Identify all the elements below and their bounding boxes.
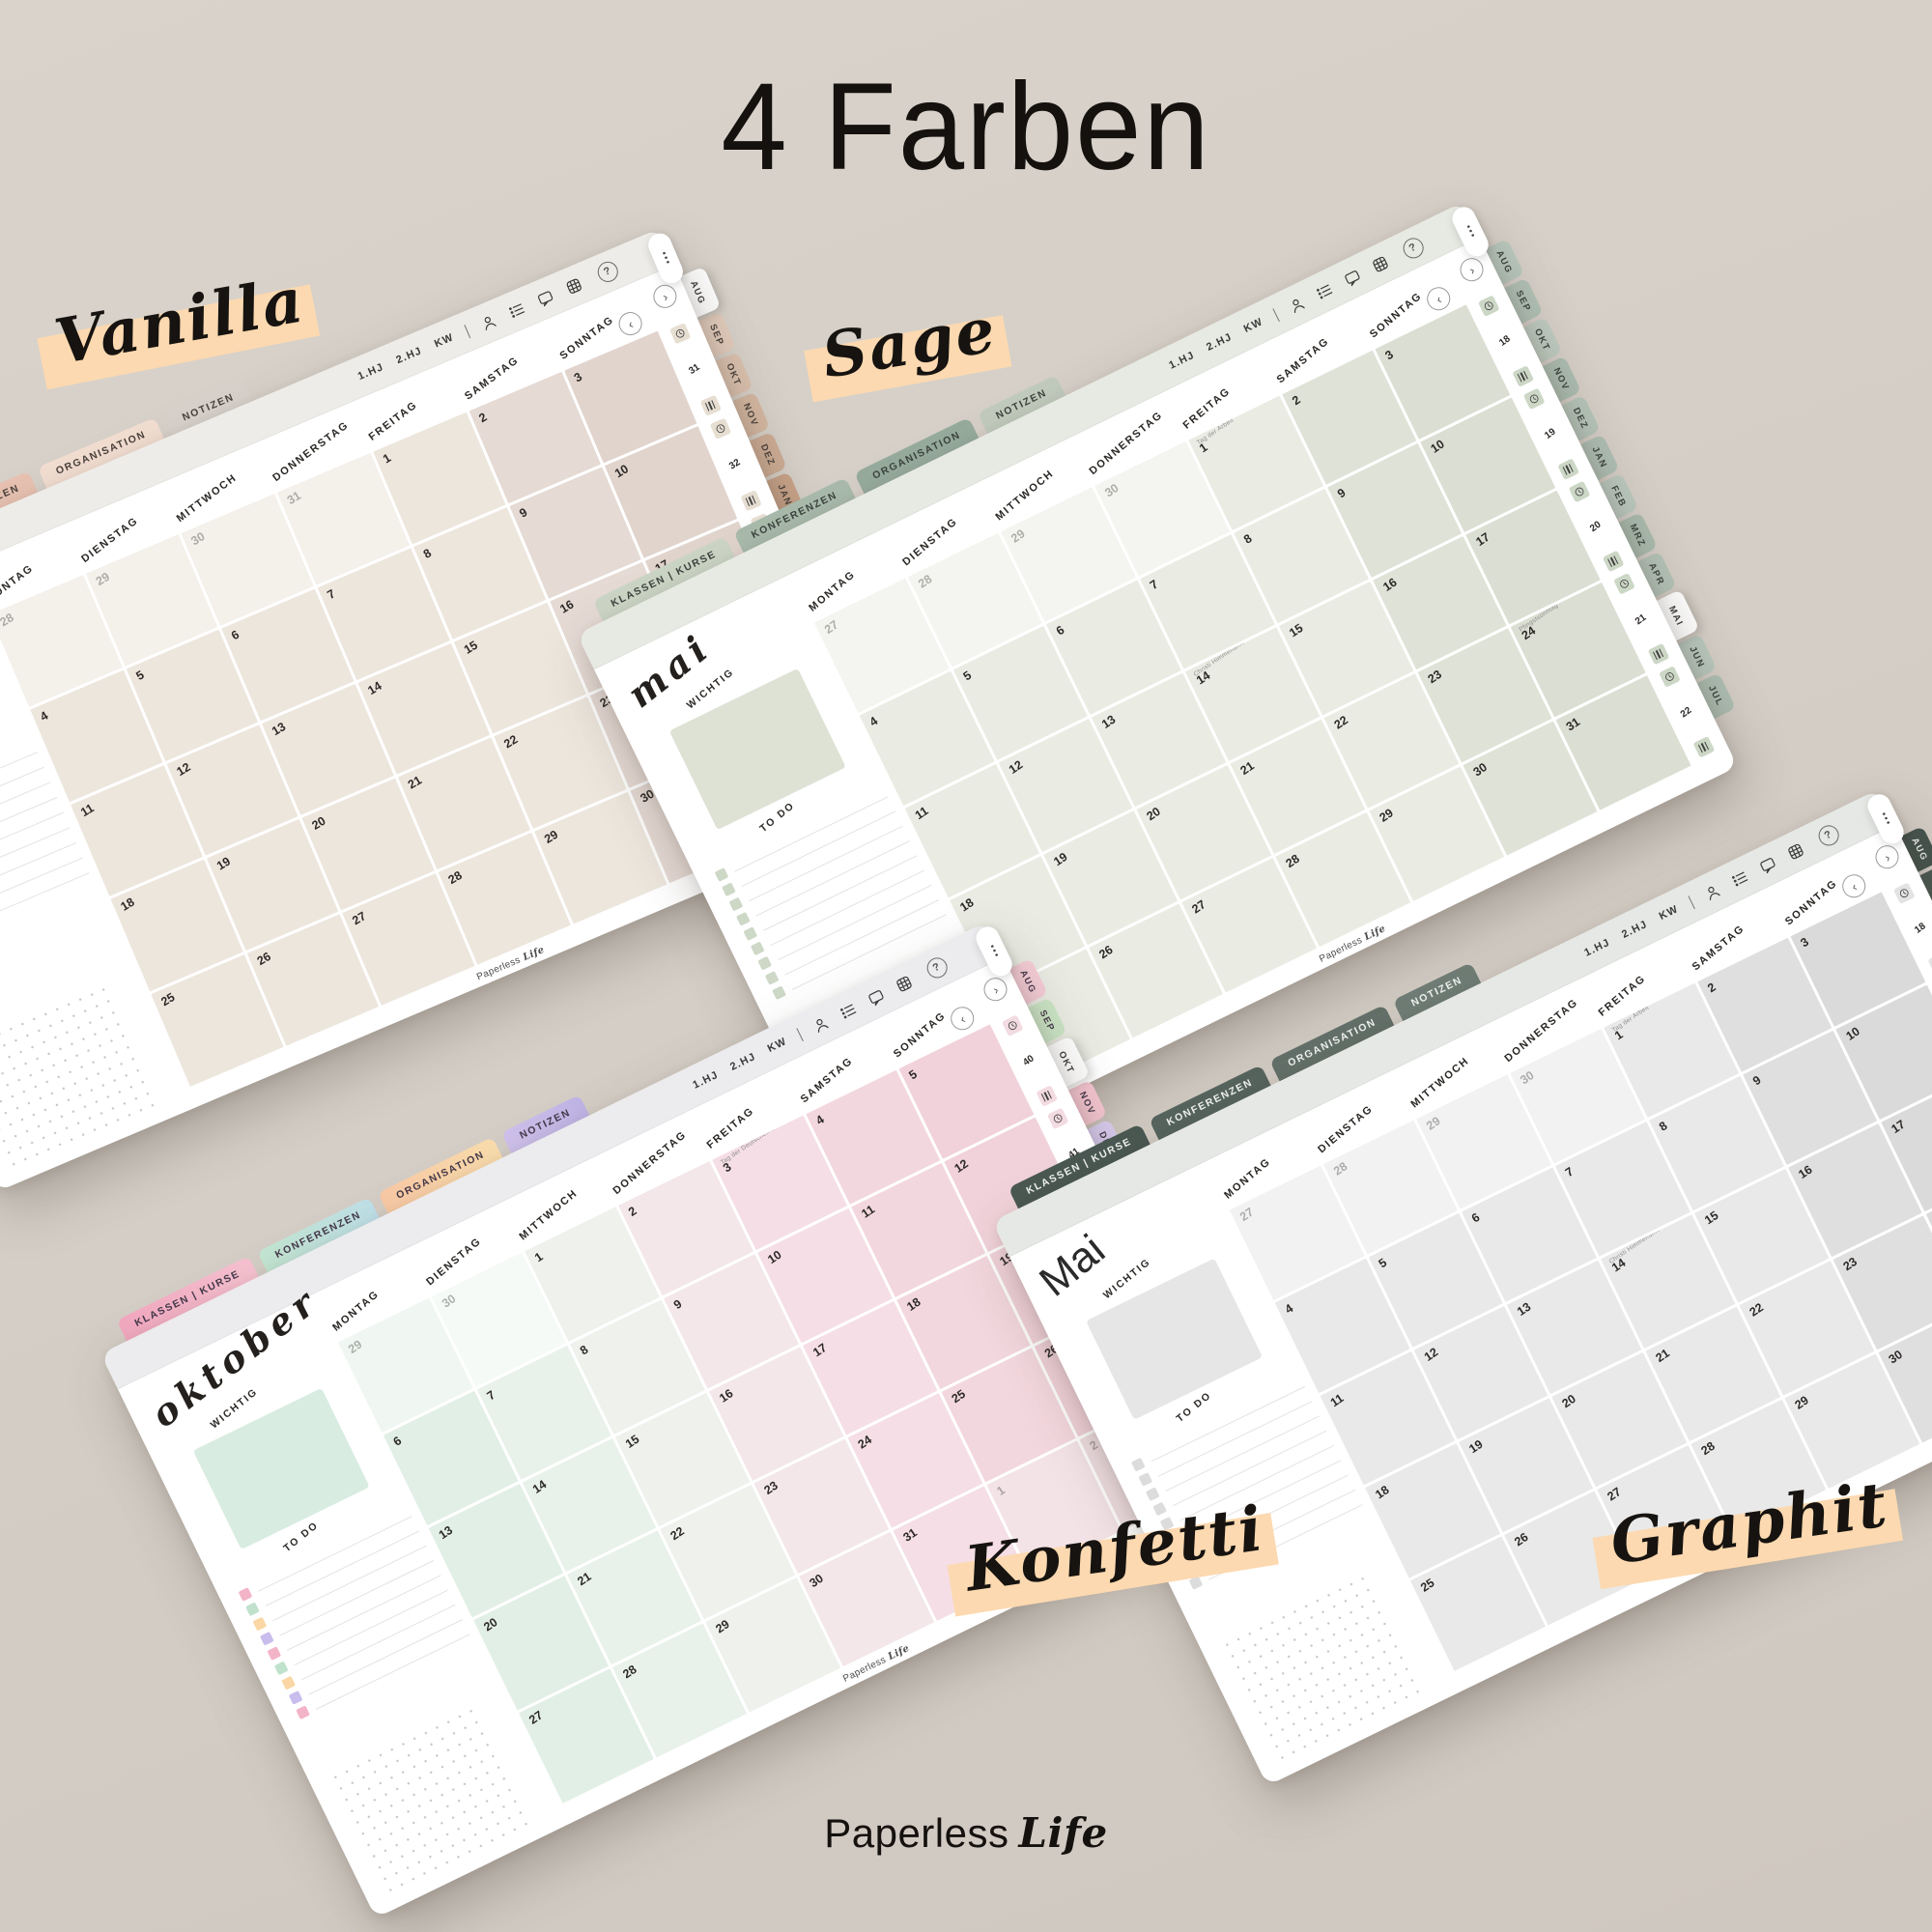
week-number: 18 — [1914, 922, 1928, 936]
day-number: 20 — [1560, 1392, 1578, 1410]
day-number: 1 — [1197, 440, 1210, 455]
day-number: 25 — [1418, 1577, 1436, 1595]
clock-chip[interactable] — [1568, 481, 1590, 503]
day-number: 10 — [1844, 1024, 1862, 1042]
day-number: 12 — [952, 1156, 971, 1175]
day-number: 11 — [1328, 1391, 1347, 1409]
profile-icon[interactable] — [478, 311, 499, 332]
week-number: 22 — [1679, 704, 1693, 719]
day-number: 22 — [1747, 1301, 1766, 1320]
day-number: 21 — [1654, 1347, 1672, 1365]
chat-icon[interactable] — [534, 287, 555, 308]
lines-chip[interactable] — [1036, 1085, 1058, 1107]
toolbar-tab-kw[interactable]: KW — [766, 1036, 789, 1055]
day-number: 23 — [1840, 1255, 1859, 1273]
day-number: 3 — [721, 1160, 734, 1175]
day-number: 8 — [578, 1343, 591, 1357]
clock-chip[interactable] — [709, 418, 730, 440]
day-number: 9 — [517, 505, 529, 521]
week-number: 40 — [1022, 1054, 1037, 1068]
toolbar-tab-kw[interactable]: KW — [433, 331, 456, 350]
day-number: 12 — [174, 760, 192, 779]
day-number: 2 — [1705, 980, 1719, 995]
label-sage: Sage — [817, 294, 1002, 392]
day-number: 29 — [542, 828, 560, 846]
day-number: 16 — [1796, 1162, 1814, 1180]
day-number: 3 — [1383, 348, 1397, 362]
label-vanilla: Vanilla — [49, 264, 309, 379]
day-number: 30 — [189, 529, 208, 548]
profile-icon[interactable] — [1286, 294, 1308, 316]
day-number: 2 — [626, 1204, 639, 1218]
day-number: 27 — [1237, 1206, 1256, 1224]
help-icon[interactable]: ? — [594, 258, 621, 285]
day-number: 29 — [1425, 1114, 1443, 1132]
day-number: 27 — [822, 618, 840, 637]
day-number: 31 — [1564, 715, 1582, 733]
day-number: 7 — [1563, 1164, 1577, 1179]
brand-logo: PaperlessLife — [0, 1809, 1932, 1857]
day-number: 31 — [900, 1526, 919, 1545]
toolbar-tab-2hj[interactable]: 2.HJ — [1620, 919, 1649, 941]
day-number: 13 — [270, 720, 288, 738]
day-number: 28 — [916, 572, 934, 590]
tasklist-icon[interactable] — [506, 299, 527, 321]
grid-icon[interactable] — [563, 275, 584, 297]
day-number: 10 — [765, 1248, 783, 1266]
day-number: 21 — [575, 1570, 593, 1588]
help-icon[interactable]: ? — [1400, 234, 1427, 261]
day-number: 19 — [1051, 850, 1069, 868]
day-number: 26 — [255, 950, 273, 968]
chat-icon[interactable] — [1342, 267, 1364, 289]
lines-chip[interactable] — [1557, 458, 1579, 480]
day-number: 28 — [1284, 852, 1302, 870]
day-number: 21 — [1238, 759, 1257, 778]
day-number: 15 — [1702, 1208, 1720, 1227]
toolbar-divider — [796, 1028, 803, 1041]
day-number: 3 — [1799, 935, 1812, 950]
day-number: 25 — [949, 1387, 967, 1406]
week-number: 18 — [1498, 334, 1513, 349]
day-number: 8 — [1657, 1119, 1670, 1133]
week-number: 20 — [1588, 519, 1603, 533]
day-number: 2 — [476, 411, 489, 426]
tasklist-icon[interactable] — [1314, 280, 1336, 302]
day-number: 30 — [440, 1292, 458, 1310]
toolbar-divider — [464, 325, 470, 338]
page-background: 4 Farben KLASSEN | KURSEKONFERENZENORGAN… — [0, 0, 1932, 1932]
day-number: 23 — [762, 1479, 781, 1497]
day-number: 29 — [714, 1617, 732, 1635]
day-number: 22 — [501, 733, 520, 752]
day-number: 27 — [526, 1709, 545, 1727]
day-number: 10 — [1429, 437, 1447, 455]
day-number: 24 — [856, 1434, 874, 1452]
day-number: 12 — [1421, 1345, 1439, 1363]
clock-chip[interactable] — [1046, 1108, 1068, 1130]
day-number: 15 — [1287, 621, 1305, 639]
day-number: 7 — [325, 586, 337, 602]
lines-chip[interactable] — [699, 395, 721, 416]
toolbar-divider — [1688, 895, 1694, 909]
day-number: 29 — [94, 570, 112, 588]
day-number: 8 — [421, 546, 434, 561]
day-number: 11 — [78, 801, 97, 819]
day-number: 1 — [532, 1250, 546, 1264]
day-number: 13 — [437, 1523, 455, 1542]
dot-grid[interactable] — [327, 1702, 537, 1901]
day-number: 6 — [229, 627, 241, 642]
brand-accent: Life — [1018, 1809, 1107, 1857]
day-number: 19 — [1466, 1437, 1485, 1456]
toolbar-divider — [1272, 308, 1279, 322]
lines-chip[interactable] — [1647, 643, 1669, 666]
lines-chip[interactable] — [1692, 736, 1715, 758]
day-number: 14 — [529, 1477, 548, 1495]
day-number: 21 — [406, 774, 424, 792]
day-number: 13 — [1515, 1299, 1533, 1318]
profile-icon[interactable] — [1701, 881, 1723, 903]
clock-chip[interactable] — [1477, 296, 1499, 318]
day-number: 9 — [671, 1296, 685, 1311]
day-number: 30 — [1886, 1348, 1904, 1366]
day-number: 4 — [38, 709, 50, 724]
day-number: 19 — [214, 855, 233, 873]
day-number: 6 — [1054, 623, 1067, 638]
day-number: 31 — [285, 489, 303, 507]
day-number: 4 — [813, 1113, 827, 1127]
day-number: 15 — [623, 1432, 641, 1450]
week-number: 31 — [688, 362, 702, 377]
lines-chip[interactable] — [740, 490, 761, 511]
day-number: 11 — [859, 1203, 877, 1221]
day-number: 28 — [446, 868, 465, 887]
day-number: 17 — [1473, 529, 1492, 548]
day-number: 14 — [365, 678, 384, 696]
toolbar-tab-2hj[interactable]: 2.HJ — [394, 345, 424, 366]
day-number: 20 — [310, 814, 328, 833]
profile-icon[interactable] — [810, 1013, 832, 1036]
day-number: 16 — [717, 1386, 735, 1405]
day-number: 26 — [1512, 1530, 1530, 1548]
dot-grid[interactable] — [1219, 1570, 1429, 1769]
day-number: 5 — [907, 1067, 921, 1082]
clock-chip[interactable] — [1613, 574, 1635, 596]
day-number: 22 — [668, 1524, 687, 1543]
day-number: 1 — [994, 1484, 1008, 1498]
day-number: 6 — [1469, 1210, 1483, 1225]
day-number: 7 — [1148, 577, 1161, 591]
day-number: 27 — [1605, 1485, 1624, 1503]
day-number: 23 — [1425, 668, 1443, 686]
day-number: 18 — [957, 896, 976, 915]
day-number: 7 — [484, 1388, 497, 1403]
day-number: 4 — [867, 714, 880, 728]
page-title: 4 Farben — [39, 56, 1893, 198]
week-number: 19 — [1544, 426, 1558, 440]
day-number: 18 — [1373, 1484, 1391, 1502]
day-number: 29 — [1009, 526, 1028, 545]
day-number: 15 — [462, 638, 480, 656]
day-number: 9 — [1750, 1073, 1764, 1088]
tasklist-icon[interactable] — [838, 1000, 860, 1022]
day-number: 28 — [620, 1662, 639, 1681]
day-number: 3 — [572, 370, 584, 385]
day-number: 4 — [1282, 1301, 1295, 1316]
day-number: 10 — [612, 462, 631, 480]
clock-chip[interactable] — [1522, 388, 1545, 411]
day-number: 11 — [913, 804, 931, 822]
day-number: 1 — [381, 451, 393, 467]
toolbar-tab-1hj[interactable]: 1.HJ — [356, 361, 386, 383]
toolbar-tab-kw[interactable]: KW — [1242, 316, 1265, 335]
week-number: 21 — [1634, 611, 1648, 626]
day-number: 8 — [1241, 531, 1255, 546]
day-number: 5 — [960, 668, 974, 683]
day-number: 20 — [1145, 805, 1163, 823]
brand-name: Paperless — [824, 1810, 1009, 1856]
grid-icon[interactable] — [893, 973, 915, 995]
clock-chip[interactable] — [1001, 1015, 1023, 1037]
day-number: 18 — [119, 895, 137, 914]
toolbar-tab-1hj[interactable]: 1.HJ — [1167, 350, 1196, 372]
grid-icon[interactable] — [1784, 840, 1806, 863]
day-number: 30 — [1518, 1068, 1536, 1087]
day-number: 16 — [557, 597, 576, 615]
chat-icon[interactable] — [866, 986, 888, 1009]
toolbar-tab-kw[interactable]: KW — [1658, 903, 1681, 923]
day-number: 2 — [1290, 393, 1303, 408]
day-number: 16 — [1380, 575, 1399, 593]
toolbar-tab-2hj[interactable]: 2.HJ — [1205, 331, 1234, 354]
day-number: 27 — [351, 909, 369, 927]
day-number: 20 — [481, 1616, 499, 1634]
day-number: 1 — [1612, 1028, 1626, 1042]
day-number: 28 — [0, 611, 16, 629]
grid-icon[interactable] — [1369, 253, 1391, 275]
week-number: 32 — [728, 457, 743, 471]
lines-chip[interactable] — [1602, 551, 1624, 573]
day-number: 6 — [390, 1434, 404, 1448]
tasklist-icon[interactable] — [1729, 867, 1751, 890]
day-number: 30 — [1102, 481, 1121, 499]
day-number: 17 — [810, 1341, 829, 1359]
day-number: 13 — [1099, 712, 1118, 730]
dot-grid[interactable] — [0, 981, 163, 1176]
toolbar-tab-1hj[interactable]: 1.HJ — [1582, 937, 1611, 959]
day-number: 9 — [1335, 486, 1349, 500]
day-number: 27 — [1190, 897, 1208, 916]
day-number: 12 — [1006, 757, 1024, 776]
day-number: 17 — [1889, 1117, 1907, 1135]
day-number: 28 — [1331, 1159, 1350, 1178]
help-icon[interactable]: ? — [1815, 821, 1842, 848]
todo-checkbox[interactable] — [772, 985, 786, 1000]
lines-chip[interactable] — [1512, 365, 1534, 387]
chat-icon[interactable] — [1757, 854, 1779, 876]
label-text: Sage — [817, 294, 1002, 392]
todo-checkbox[interactable] — [296, 1705, 310, 1719]
day-number: 25 — [158, 990, 177, 1009]
day-number: 30 — [1470, 760, 1489, 779]
day-number: 29 — [1792, 1394, 1810, 1412]
day-number: 29 — [346, 1338, 364, 1356]
lines-chip[interactable] — [1927, 952, 1932, 975]
day-number: 29 — [1377, 807, 1395, 825]
day-number: 5 — [133, 668, 146, 683]
clock-chip[interactable] — [1659, 667, 1681, 689]
toolbar-tab-1hj[interactable]: 1.HJ — [691, 1069, 720, 1092]
day-number: 30 — [808, 1572, 826, 1590]
clock-chip[interactable] — [1892, 883, 1915, 905]
help-icon[interactable]: ? — [923, 953, 951, 980]
day-number: 26 — [1096, 943, 1115, 961]
day-number: 5 — [1376, 1256, 1389, 1270]
day-number: 28 — [1699, 1439, 1718, 1458]
clock-chip[interactable] — [669, 323, 691, 344]
day-number: 22 — [1332, 714, 1350, 732]
day-number: 18 — [904, 1294, 923, 1313]
toolbar-tab-2hj[interactable]: 2.HJ — [728, 1051, 757, 1073]
